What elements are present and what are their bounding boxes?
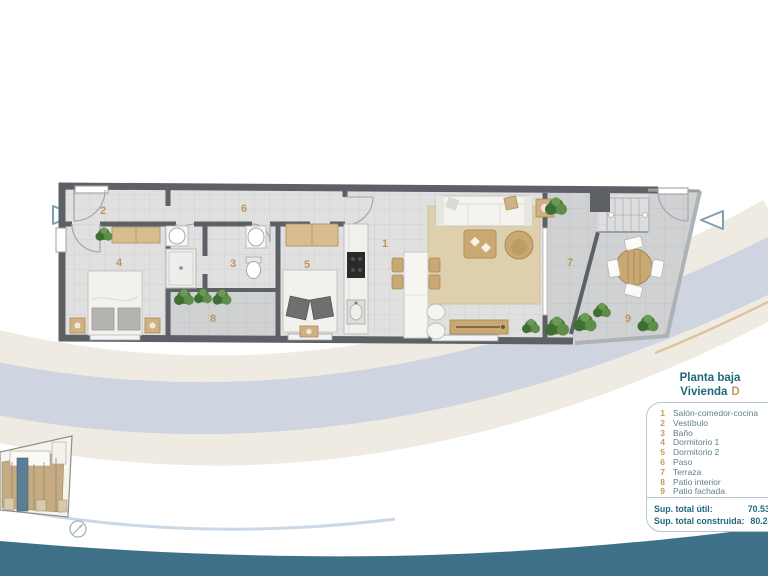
legend-room-row: 9Patio fachada bbox=[647, 487, 768, 497]
unit-label: Vivienda bbox=[680, 386, 727, 398]
kitchen-counter bbox=[344, 224, 368, 334]
plan-room-number-9: 9 bbox=[625, 313, 631, 325]
plan-room-number-1: 1 bbox=[382, 238, 388, 250]
total-built-label: Sup. total construida: bbox=[654, 515, 744, 527]
compass-icon bbox=[70, 521, 86, 537]
legend-title: Planta baja ViviendaD bbox=[640, 371, 768, 399]
dormitorio2-furniture bbox=[283, 224, 338, 337]
plan-room-number-5: 5 bbox=[304, 259, 310, 271]
floor-title: Planta baja bbox=[640, 371, 768, 385]
legend-totals: Sup. total útil:70.53 m² Sup. total cons… bbox=[647, 497, 768, 539]
legend-room-row: 2Vestíbulo bbox=[647, 419, 768, 429]
terrace-slider bbox=[543, 228, 547, 315]
plan-room-number-6: 6 bbox=[241, 203, 247, 215]
total-util-label: Sup. total útil: bbox=[654, 503, 713, 515]
plan-room-number-8: 8 bbox=[210, 313, 216, 325]
legend-box: 1Salón-comedor-cocina 2Vestíbulo 3Baño 4… bbox=[646, 402, 768, 532]
legend-room-row: 5Dormitorio 2 bbox=[647, 448, 768, 458]
total-util-row: Sup. total útil:70.53 m² bbox=[654, 503, 768, 515]
plan-room-number-2: 2 bbox=[100, 205, 106, 217]
floor-plan: 1 2 3 4 5 6 7 8 9 bbox=[44, 186, 700, 343]
highlighted-unit-d bbox=[17, 458, 28, 511]
plan-room-number-7: 7 bbox=[567, 257, 573, 269]
plan-room-number-4: 4 bbox=[116, 257, 123, 269]
total-built-value: 80.24 m² bbox=[750, 515, 768, 527]
legend-room-row: 6Paso bbox=[647, 458, 768, 468]
legend-room-list: 1Salón-comedor-cocina 2Vestíbulo 3Baño 4… bbox=[647, 403, 768, 497]
stairs bbox=[607, 198, 649, 232]
unit-title: ViviendaD bbox=[640, 385, 768, 399]
page: { "legend": { "title_floor": "Planta baj… bbox=[0, 0, 768, 576]
legend-room-name: Patio fachada bbox=[673, 487, 725, 497]
total-built-row: Sup. total construida:80.24 m² bbox=[654, 515, 768, 527]
legend-room-number: 9 bbox=[647, 487, 673, 497]
entry-arrow-right-icon bbox=[701, 211, 723, 229]
total-util-value: 70.53 m² bbox=[748, 503, 768, 515]
plan-room-number-3: 3 bbox=[230, 258, 236, 270]
unit-letter: D bbox=[731, 386, 739, 398]
